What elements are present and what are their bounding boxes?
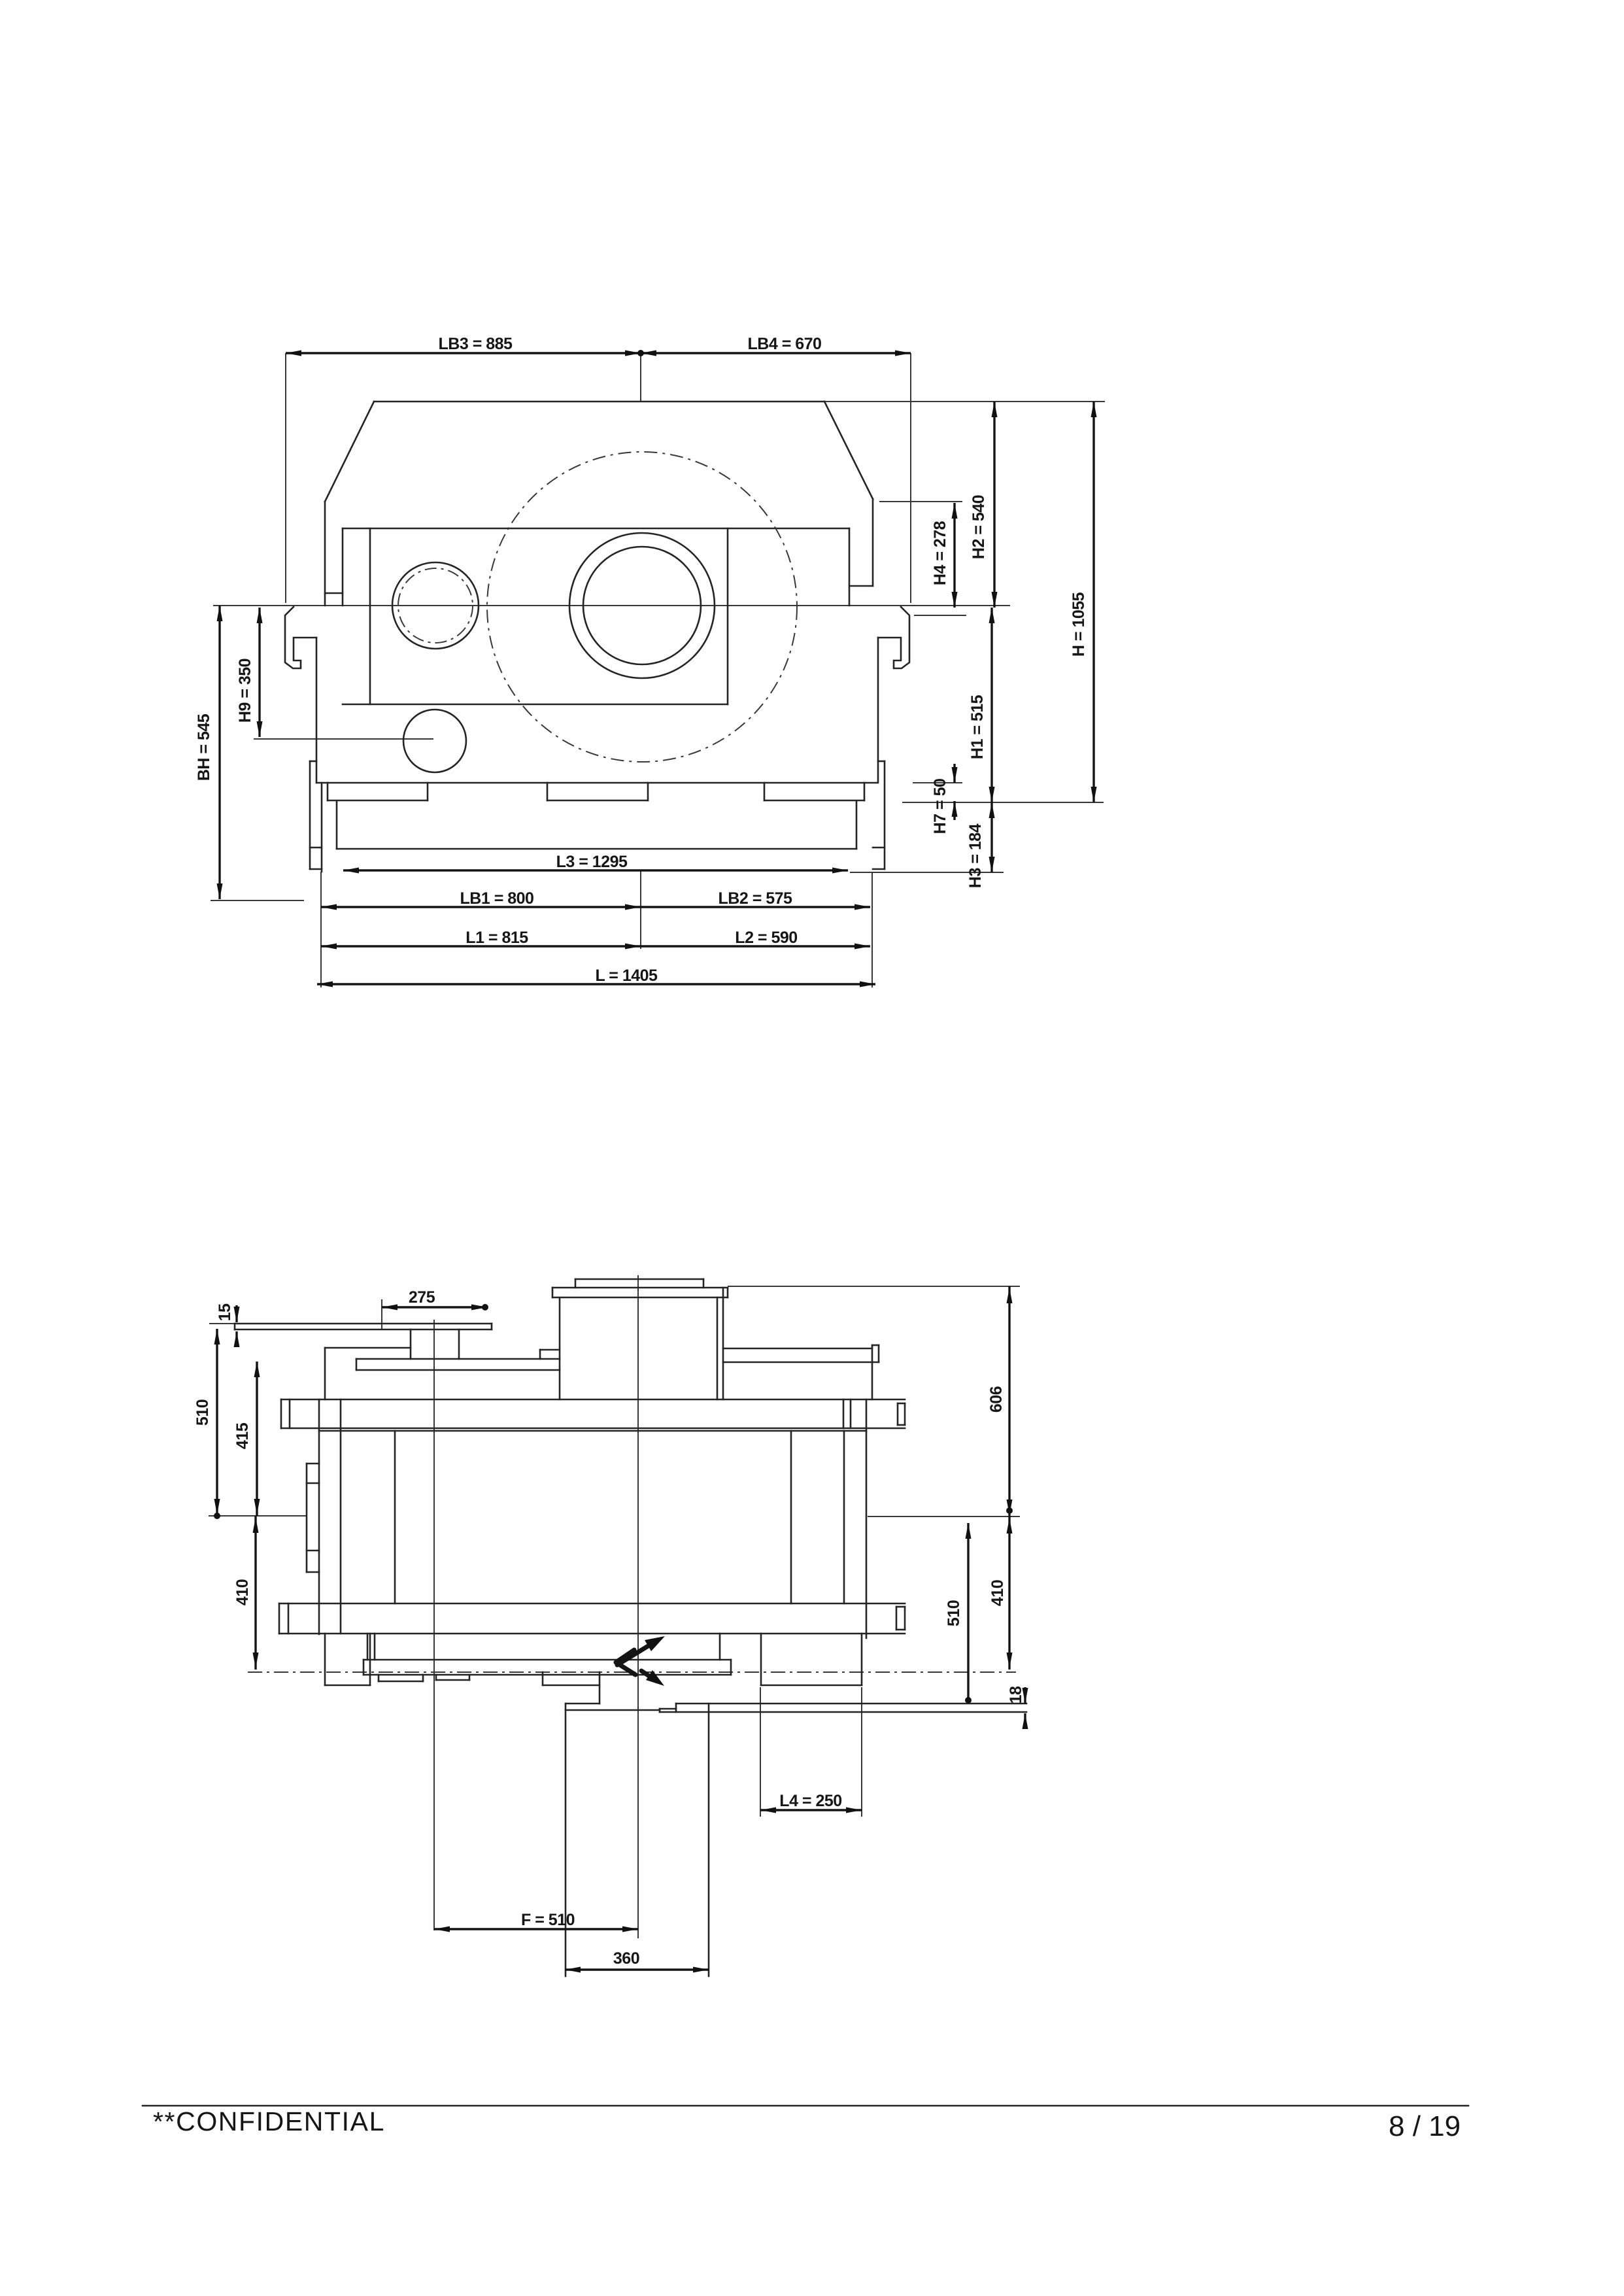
svg-text:8 / 19: 8 / 19 <box>1389 2110 1461 2142</box>
svg-text:H = 1055: H = 1055 <box>1070 592 1088 657</box>
svg-text:H1 = 515: H1 = 515 <box>968 694 987 759</box>
svg-text:LB4 = 670: LB4 = 670 <box>748 335 822 353</box>
svg-text:LB1 = 800: LB1 = 800 <box>460 889 534 908</box>
svg-text:F = 510: F = 510 <box>521 1911 575 1929</box>
svg-text:15: 15 <box>216 1303 234 1321</box>
svg-text:L2 = 590: L2 = 590 <box>735 929 797 947</box>
svg-text:BH = 545: BH = 545 <box>195 713 213 781</box>
svg-text:L = 1405: L = 1405 <box>596 967 658 985</box>
svg-text:L4 = 250: L4 = 250 <box>779 1792 841 1810</box>
svg-text:**CONFIDENTIAL: **CONFIDENTIAL <box>153 2106 385 2136</box>
svg-text:H4 = 278: H4 = 278 <box>931 521 949 585</box>
svg-text:H7 = 50: H7 = 50 <box>931 779 949 834</box>
svg-text:275: 275 <box>409 1288 435 1307</box>
svg-text:H3 = 184: H3 = 184 <box>966 823 985 888</box>
svg-text:L1 = 815: L1 = 815 <box>465 929 528 947</box>
svg-text:410: 410 <box>989 1580 1007 1606</box>
svg-text:H2 = 540: H2 = 540 <box>970 495 988 559</box>
svg-text:410: 410 <box>233 1579 252 1605</box>
svg-text:LB3 = 885: LB3 = 885 <box>439 335 513 353</box>
svg-text:360: 360 <box>613 1949 639 1968</box>
svg-text:510: 510 <box>194 1399 212 1426</box>
svg-text:415: 415 <box>233 1422 252 1449</box>
svg-text:18: 18 <box>1007 1686 1025 1704</box>
svg-text:LB2 = 575: LB2 = 575 <box>719 889 793 908</box>
svg-text:606: 606 <box>987 1386 1006 1413</box>
svg-text:L3 = 1295: L3 = 1295 <box>556 853 628 871</box>
svg-text:H9 = 350: H9 = 350 <box>236 659 254 723</box>
svg-text:510: 510 <box>945 1600 963 1626</box>
